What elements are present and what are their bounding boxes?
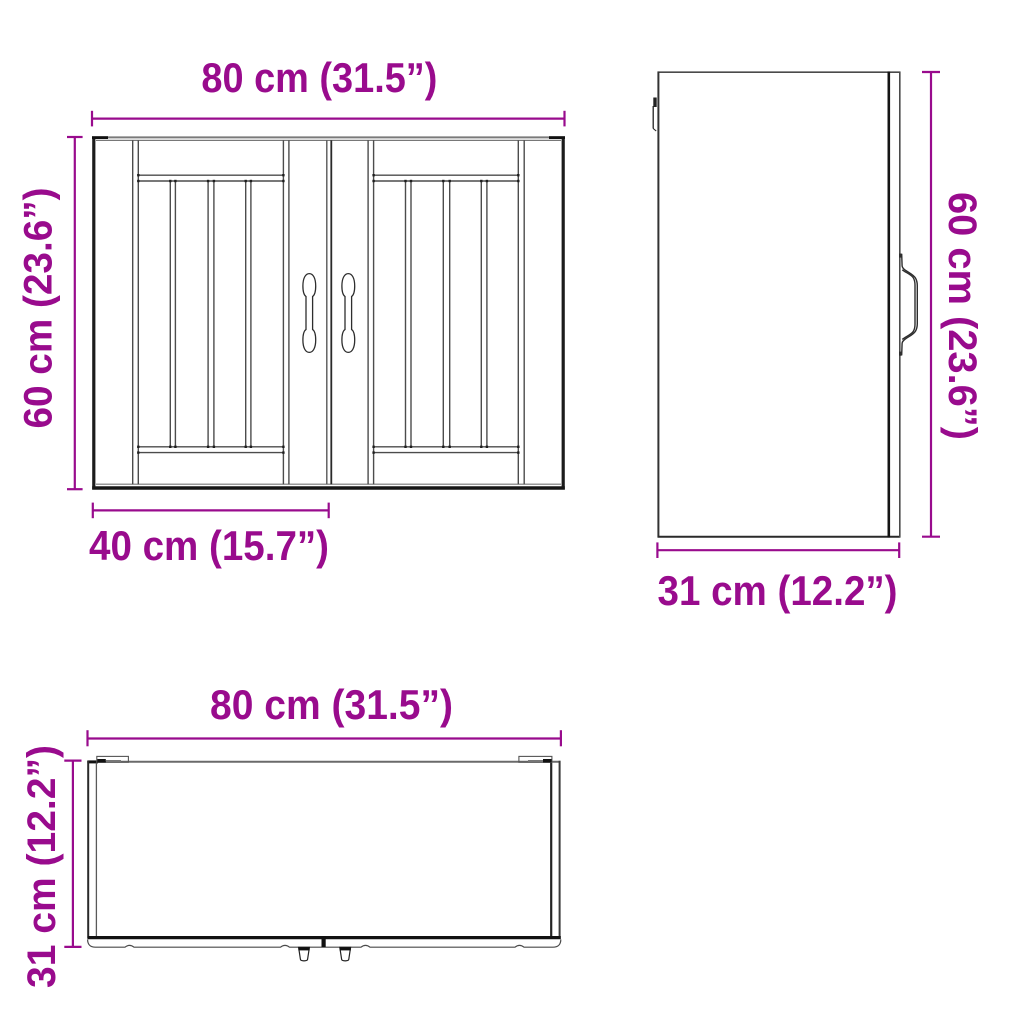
- svg-text:80 cm (31.5”): 80 cm (31.5”): [201, 54, 437, 101]
- svg-text:40 cm (15.7”): 40 cm (15.7”): [89, 522, 329, 569]
- svg-text:60 cm (23.6”): 60 cm (23.6”): [940, 192, 984, 440]
- svg-text:31 cm (12.2”): 31 cm (12.2”): [20, 745, 64, 988]
- svg-text:31 cm (12.2”): 31 cm (12.2”): [658, 567, 898, 614]
- svg-text:60 cm (23.6”): 60 cm (23.6”): [17, 188, 61, 429]
- svg-text:80 cm (31.5”): 80 cm (31.5”): [210, 681, 453, 728]
